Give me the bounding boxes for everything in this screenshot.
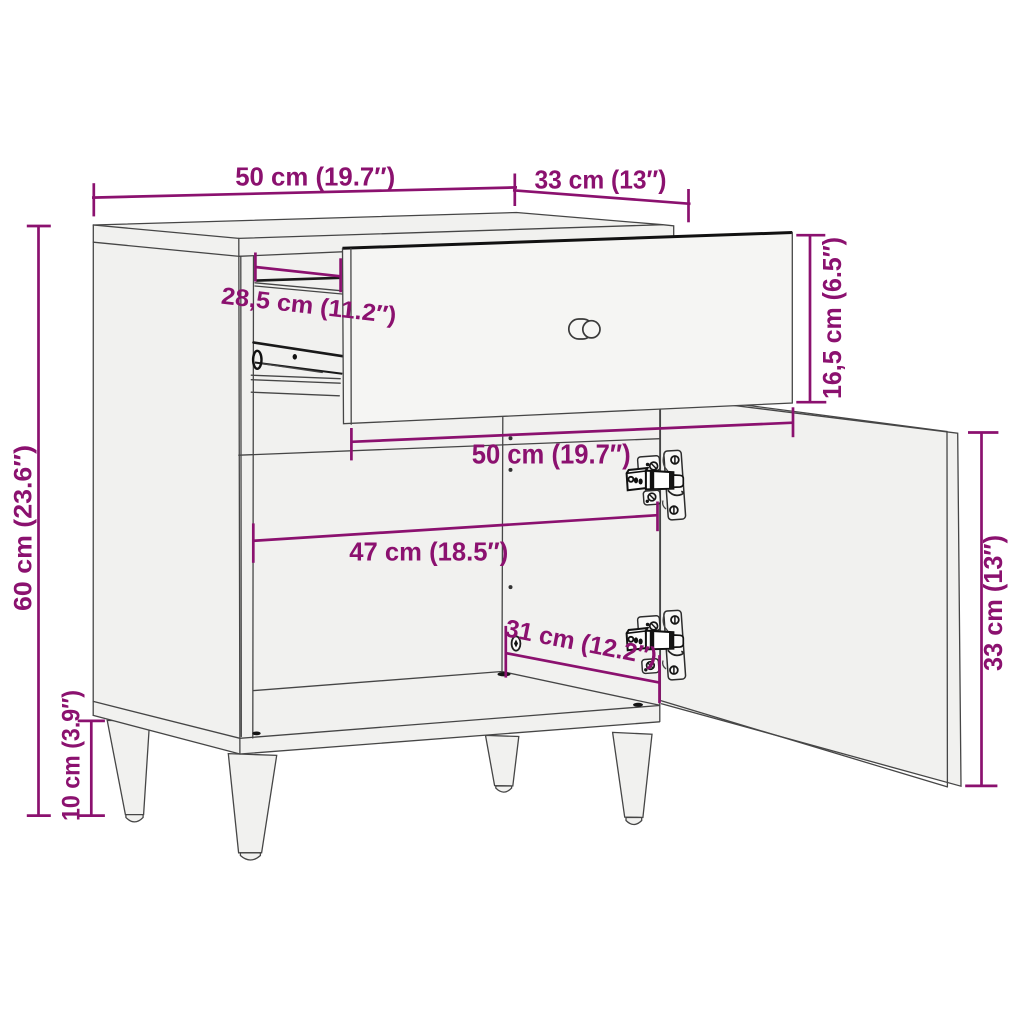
- svg-text:60 cm (23.6″): 60 cm (23.6″): [10, 445, 38, 611]
- svg-text:50 cm (19.7″): 50 cm (19.7″): [235, 162, 395, 192]
- svg-text:33 cm (13″): 33 cm (13″): [978, 535, 1008, 671]
- svg-text:10 cm (3.9″): 10 cm (3.9″): [58, 690, 86, 821]
- svg-text:33 cm (13″): 33 cm (13″): [535, 165, 667, 195]
- svg-text:50 cm (19.7″): 50 cm (19.7″): [472, 438, 631, 469]
- svg-text:16,5 cm (6.5″): 16,5 cm (6.5″): [817, 237, 847, 399]
- svg-text:47 cm (18.5″): 47 cm (18.5″): [349, 537, 508, 567]
